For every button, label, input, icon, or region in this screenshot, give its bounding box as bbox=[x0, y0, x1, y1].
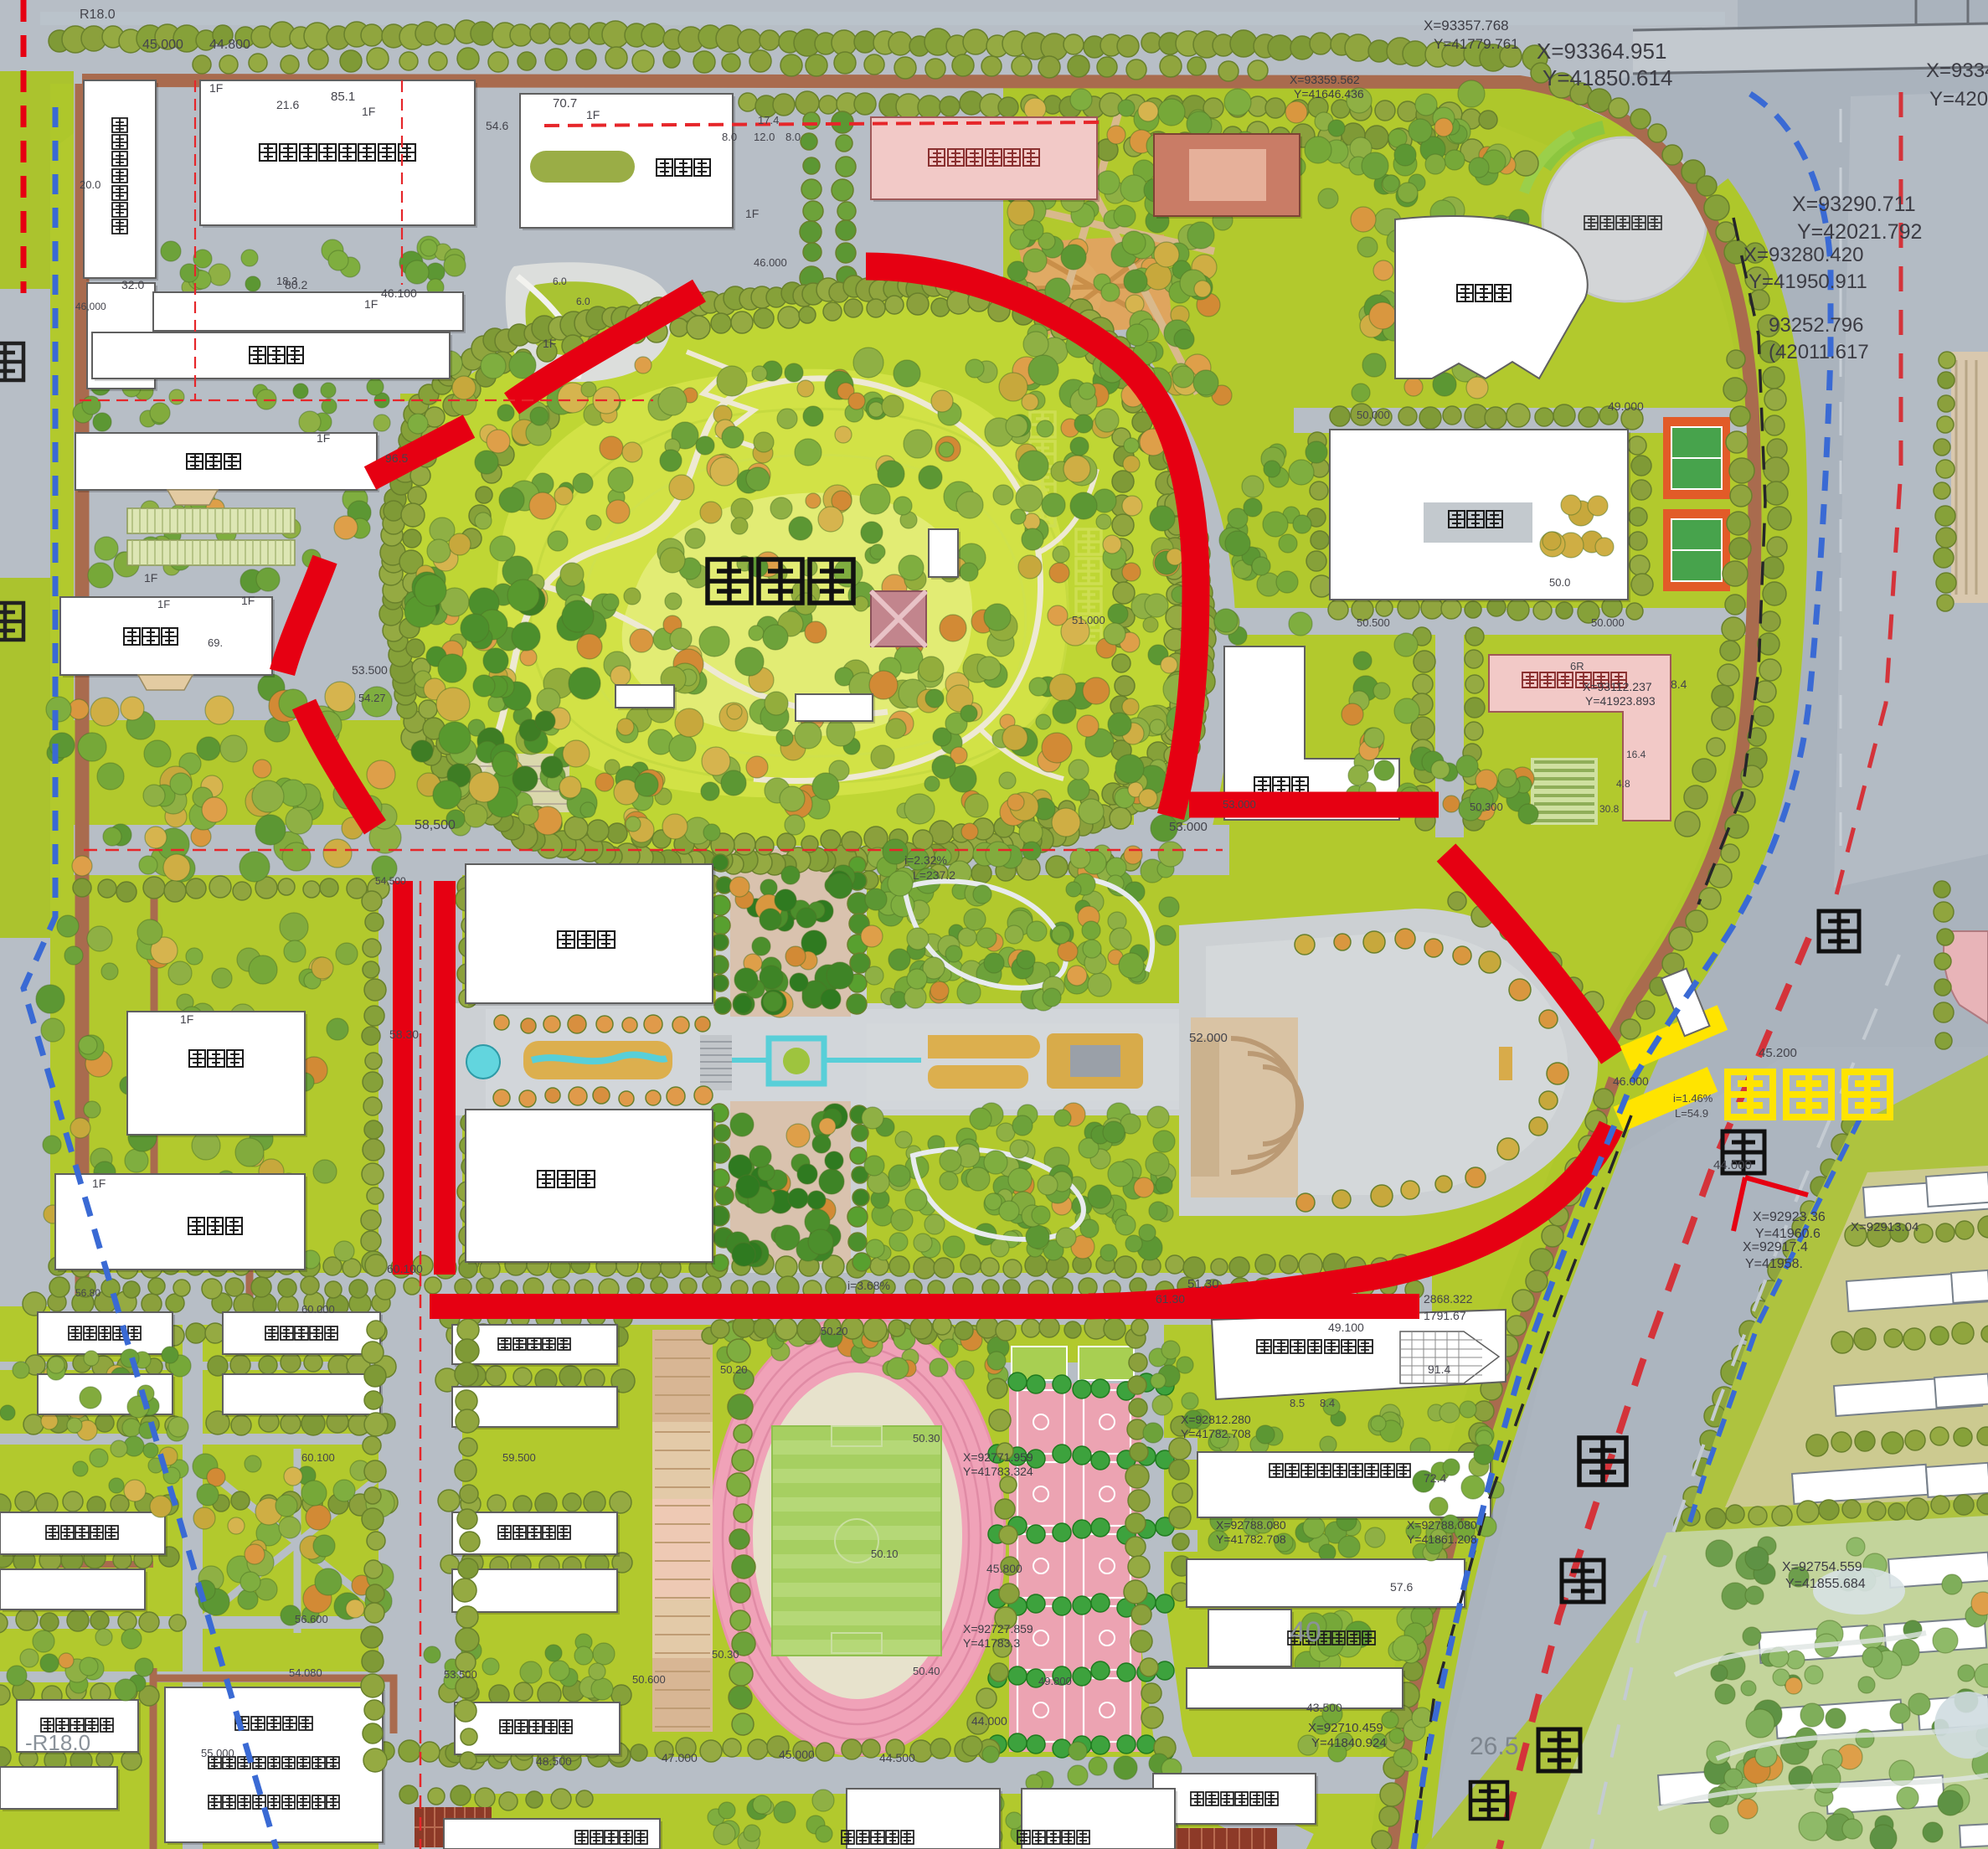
svg-text:X=92913.04: X=92913.04 bbox=[1851, 1220, 1918, 1234]
svg-text:48.500: 48.500 bbox=[536, 1754, 572, 1768]
svg-text:Y=41783.324: Y=41783.324 bbox=[963, 1465, 1033, 1478]
svg-text:L=237.2: L=237.2 bbox=[913, 868, 955, 882]
svg-text:50.20: 50.20 bbox=[720, 1363, 748, 1376]
svg-text:51.000: 51.000 bbox=[1072, 614, 1105, 626]
svg-text:Y=41850.614: Y=41850.614 bbox=[1543, 65, 1672, 90]
svg-text:32.0: 32.0 bbox=[121, 278, 144, 291]
svg-text:1791.67: 1791.67 bbox=[1424, 1309, 1466, 1322]
svg-text:52.000: 52.000 bbox=[1189, 1031, 1228, 1045]
svg-text:56.80: 56.80 bbox=[75, 1287, 100, 1299]
svg-text:20.0: 20.0 bbox=[80, 178, 100, 191]
svg-text:46.100: 46.100 bbox=[381, 286, 417, 300]
svg-text:X=93112.237: X=93112.237 bbox=[1583, 680, 1652, 693]
svg-text:50.30: 50.30 bbox=[712, 1648, 739, 1661]
svg-text:55.000: 55.000 bbox=[201, 1747, 234, 1759]
svg-text:X=93280.420: X=93280.420 bbox=[1743, 244, 1863, 266]
svg-text:X=93357.768: X=93357.768 bbox=[1424, 18, 1509, 33]
svg-text:1F: 1F bbox=[317, 431, 330, 445]
svg-text:46.000: 46.000 bbox=[1613, 1074, 1649, 1088]
svg-text:56.600: 56.600 bbox=[295, 1613, 328, 1625]
svg-text:44.800: 44.800 bbox=[209, 38, 250, 52]
svg-text:50.300: 50.300 bbox=[1470, 801, 1503, 813]
svg-text:8.0: 8.0 bbox=[785, 131, 801, 143]
svg-text:50.000: 50.000 bbox=[1591, 616, 1625, 629]
svg-text:50.10: 50.10 bbox=[871, 1548, 899, 1560]
svg-text:8.5: 8.5 bbox=[1290, 1397, 1305, 1409]
svg-text:51.30: 51.30 bbox=[1187, 1277, 1219, 1291]
svg-text:L=54.9: L=54.9 bbox=[1675, 1107, 1708, 1120]
svg-text:Y=4206: Y=4206 bbox=[1929, 88, 1988, 111]
svg-text:44.000: 44.000 bbox=[1713, 1158, 1752, 1172]
svg-text:45.800: 45.800 bbox=[986, 1562, 1022, 1575]
svg-text:49.000: 49.000 bbox=[1608, 399, 1644, 413]
svg-text:i=3.68%: i=3.68% bbox=[847, 1279, 890, 1292]
svg-text:53.500: 53.500 bbox=[444, 1668, 477, 1681]
svg-text:R18.0: R18.0 bbox=[80, 8, 116, 22]
svg-text:1F: 1F bbox=[586, 108, 600, 121]
svg-text:21.6: 21.6 bbox=[276, 98, 299, 111]
svg-text:17.4: 17.4 bbox=[758, 114, 779, 126]
svg-text:6.0: 6.0 bbox=[553, 276, 567, 287]
svg-text:Y=41958.: Y=41958. bbox=[1745, 1257, 1803, 1271]
svg-text:1F: 1F bbox=[209, 81, 223, 95]
svg-text:44.000: 44.000 bbox=[971, 1714, 1007, 1728]
svg-text:53.500: 53.500 bbox=[352, 663, 388, 677]
svg-text:X=92727.859: X=92727.859 bbox=[963, 1622, 1033, 1635]
svg-text:1F: 1F bbox=[362, 105, 375, 118]
svg-text:6.0: 6.0 bbox=[576, 296, 590, 307]
svg-text:6R: 6R bbox=[1570, 660, 1584, 672]
svg-text:61.30: 61.30 bbox=[1156, 1292, 1185, 1306]
svg-text:X=92771.959: X=92771.959 bbox=[963, 1450, 1033, 1464]
svg-text:72.4: 72.4 bbox=[1424, 1471, 1446, 1485]
svg-text:1F: 1F bbox=[241, 594, 255, 607]
svg-text:X=92923.36: X=92923.36 bbox=[1753, 1210, 1826, 1224]
svg-text:Y=41782.708: Y=41782.708 bbox=[1216, 1532, 1286, 1546]
svg-text:X=92710.459: X=92710.459 bbox=[1308, 1721, 1383, 1735]
svg-text:X=92917.4: X=92917.4 bbox=[1743, 1240, 1808, 1254]
svg-text:49.100: 49.100 bbox=[1328, 1321, 1364, 1334]
svg-text:4.8: 4.8 bbox=[1616, 778, 1630, 790]
svg-text:60.100: 60.100 bbox=[387, 1262, 423, 1275]
svg-text:54.27: 54.27 bbox=[358, 692, 386, 704]
svg-text:X=9334: X=9334 bbox=[1926, 59, 1988, 82]
svg-text:60.100: 60.100 bbox=[301, 1451, 335, 1464]
svg-text:40: 40 bbox=[1290, 1616, 1321, 1648]
svg-text:Y=41923.893: Y=41923.893 bbox=[1585, 694, 1656, 708]
svg-text:45.200: 45.200 bbox=[1759, 1046, 1797, 1060]
svg-text:1F: 1F bbox=[92, 1177, 106, 1190]
svg-text:26.5: 26.5 bbox=[1470, 1733, 1518, 1760]
svg-text:96.5: 96.5 bbox=[385, 451, 408, 465]
svg-text:46.000: 46.000 bbox=[754, 256, 787, 269]
svg-text:X=92788.080: X=92788.080 bbox=[1216, 1518, 1286, 1532]
svg-text:16.4: 16.4 bbox=[1626, 749, 1646, 760]
svg-text:50.30: 50.30 bbox=[913, 1432, 940, 1445]
svg-text:Y=41783.3: Y=41783.3 bbox=[963, 1636, 1020, 1650]
svg-text:54.6: 54.6 bbox=[486, 119, 508, 132]
svg-text:50.20: 50.20 bbox=[821, 1325, 848, 1337]
svg-text:X=93290.711: X=93290.711 bbox=[1792, 193, 1916, 216]
svg-text:85.1: 85.1 bbox=[331, 90, 355, 104]
svg-text:i=1.46%: i=1.46% bbox=[1673, 1092, 1713, 1105]
svg-text:50.40: 50.40 bbox=[913, 1665, 940, 1677]
svg-text:50.500: 50.500 bbox=[1357, 616, 1390, 629]
svg-text:54.080: 54.080 bbox=[289, 1666, 322, 1679]
svg-text:45.000: 45.000 bbox=[142, 38, 183, 52]
svg-text:46,000: 46,000 bbox=[75, 301, 106, 312]
svg-text:50.0: 50.0 bbox=[1549, 576, 1570, 589]
svg-text:8.4: 8.4 bbox=[1320, 1397, 1335, 1409]
svg-text:1F: 1F bbox=[543, 337, 556, 350]
svg-text:54,500: 54,500 bbox=[375, 875, 406, 887]
svg-text:60.000: 60.000 bbox=[301, 1303, 335, 1316]
svg-text:58.30: 58.30 bbox=[389, 1028, 419, 1041]
svg-text:8.0: 8.0 bbox=[722, 131, 737, 143]
svg-text:Y=41782.708: Y=41782.708 bbox=[1181, 1427, 1251, 1440]
svg-text:Y=41779.761: Y=41779.761 bbox=[1434, 36, 1519, 52]
svg-text:57.6: 57.6 bbox=[1390, 1580, 1413, 1594]
svg-text:50.000: 50.000 bbox=[1357, 409, 1390, 421]
svg-text:93252.796: 93252.796 bbox=[1769, 314, 1863, 337]
svg-text:1F: 1F bbox=[144, 571, 157, 585]
svg-text:8.4: 8.4 bbox=[1671, 677, 1687, 691]
svg-text:1F: 1F bbox=[364, 297, 378, 311]
svg-text:44.500: 44.500 bbox=[879, 1751, 915, 1764]
svg-text:49.800: 49.800 bbox=[1038, 1675, 1072, 1687]
svg-text:45.000: 45.000 bbox=[779, 1748, 815, 1761]
svg-text:Y=41840.924: Y=41840.924 bbox=[1311, 1736, 1387, 1750]
svg-text:Y=42021.792: Y=42021.792 bbox=[1797, 220, 1922, 244]
svg-text:53.000: 53.000 bbox=[1169, 820, 1208, 834]
svg-text:1F: 1F bbox=[180, 1012, 193, 1026]
svg-text:59.500: 59.500 bbox=[502, 1451, 536, 1464]
svg-text:-R18.0: -R18.0 bbox=[25, 1730, 90, 1755]
svg-text:47.000: 47.000 bbox=[662, 1751, 698, 1764]
svg-text:Y=41855.684: Y=41855.684 bbox=[1785, 1577, 1866, 1591]
svg-text:80.2: 80.2 bbox=[285, 278, 307, 291]
svg-text:91.4: 91.4 bbox=[1428, 1362, 1450, 1376]
svg-text:12.0: 12.0 bbox=[754, 131, 775, 143]
svg-text:53.000: 53.000 bbox=[1223, 798, 1256, 811]
svg-text:X=93364.951: X=93364.951 bbox=[1537, 39, 1666, 64]
svg-text:Y=41646.436: Y=41646.436 bbox=[1294, 87, 1364, 100]
svg-text:X=92754.559: X=92754.559 bbox=[1782, 1560, 1862, 1574]
svg-text:Y=41960.6: Y=41960.6 bbox=[1755, 1227, 1821, 1241]
svg-text:Y=41861.208: Y=41861.208 bbox=[1407, 1532, 1477, 1546]
svg-text:1F: 1F bbox=[157, 598, 170, 610]
svg-text:Y=41950.911: Y=41950.911 bbox=[1749, 270, 1867, 293]
svg-text:50.600: 50.600 bbox=[632, 1673, 666, 1686]
svg-text:X=92812.280: X=92812.280 bbox=[1181, 1413, 1251, 1426]
svg-text:58,500: 58,500 bbox=[415, 818, 456, 832]
svg-text:2868.322: 2868.322 bbox=[1424, 1292, 1473, 1306]
svg-text:(42011.617: (42011.617 bbox=[1769, 341, 1869, 363]
svg-text:i=2.32%: i=2.32% bbox=[904, 853, 947, 867]
svg-text:69.: 69. bbox=[208, 636, 223, 649]
svg-text:1F: 1F bbox=[745, 207, 759, 220]
svg-text:70.7: 70.7 bbox=[553, 96, 577, 111]
svg-text:X=93359.562: X=93359.562 bbox=[1290, 73, 1360, 86]
svg-text:X=92788.080: X=92788.080 bbox=[1407, 1518, 1477, 1532]
svg-text:43.500: 43.500 bbox=[1306, 1701, 1342, 1714]
svg-text:30.8: 30.8 bbox=[1599, 803, 1620, 815]
